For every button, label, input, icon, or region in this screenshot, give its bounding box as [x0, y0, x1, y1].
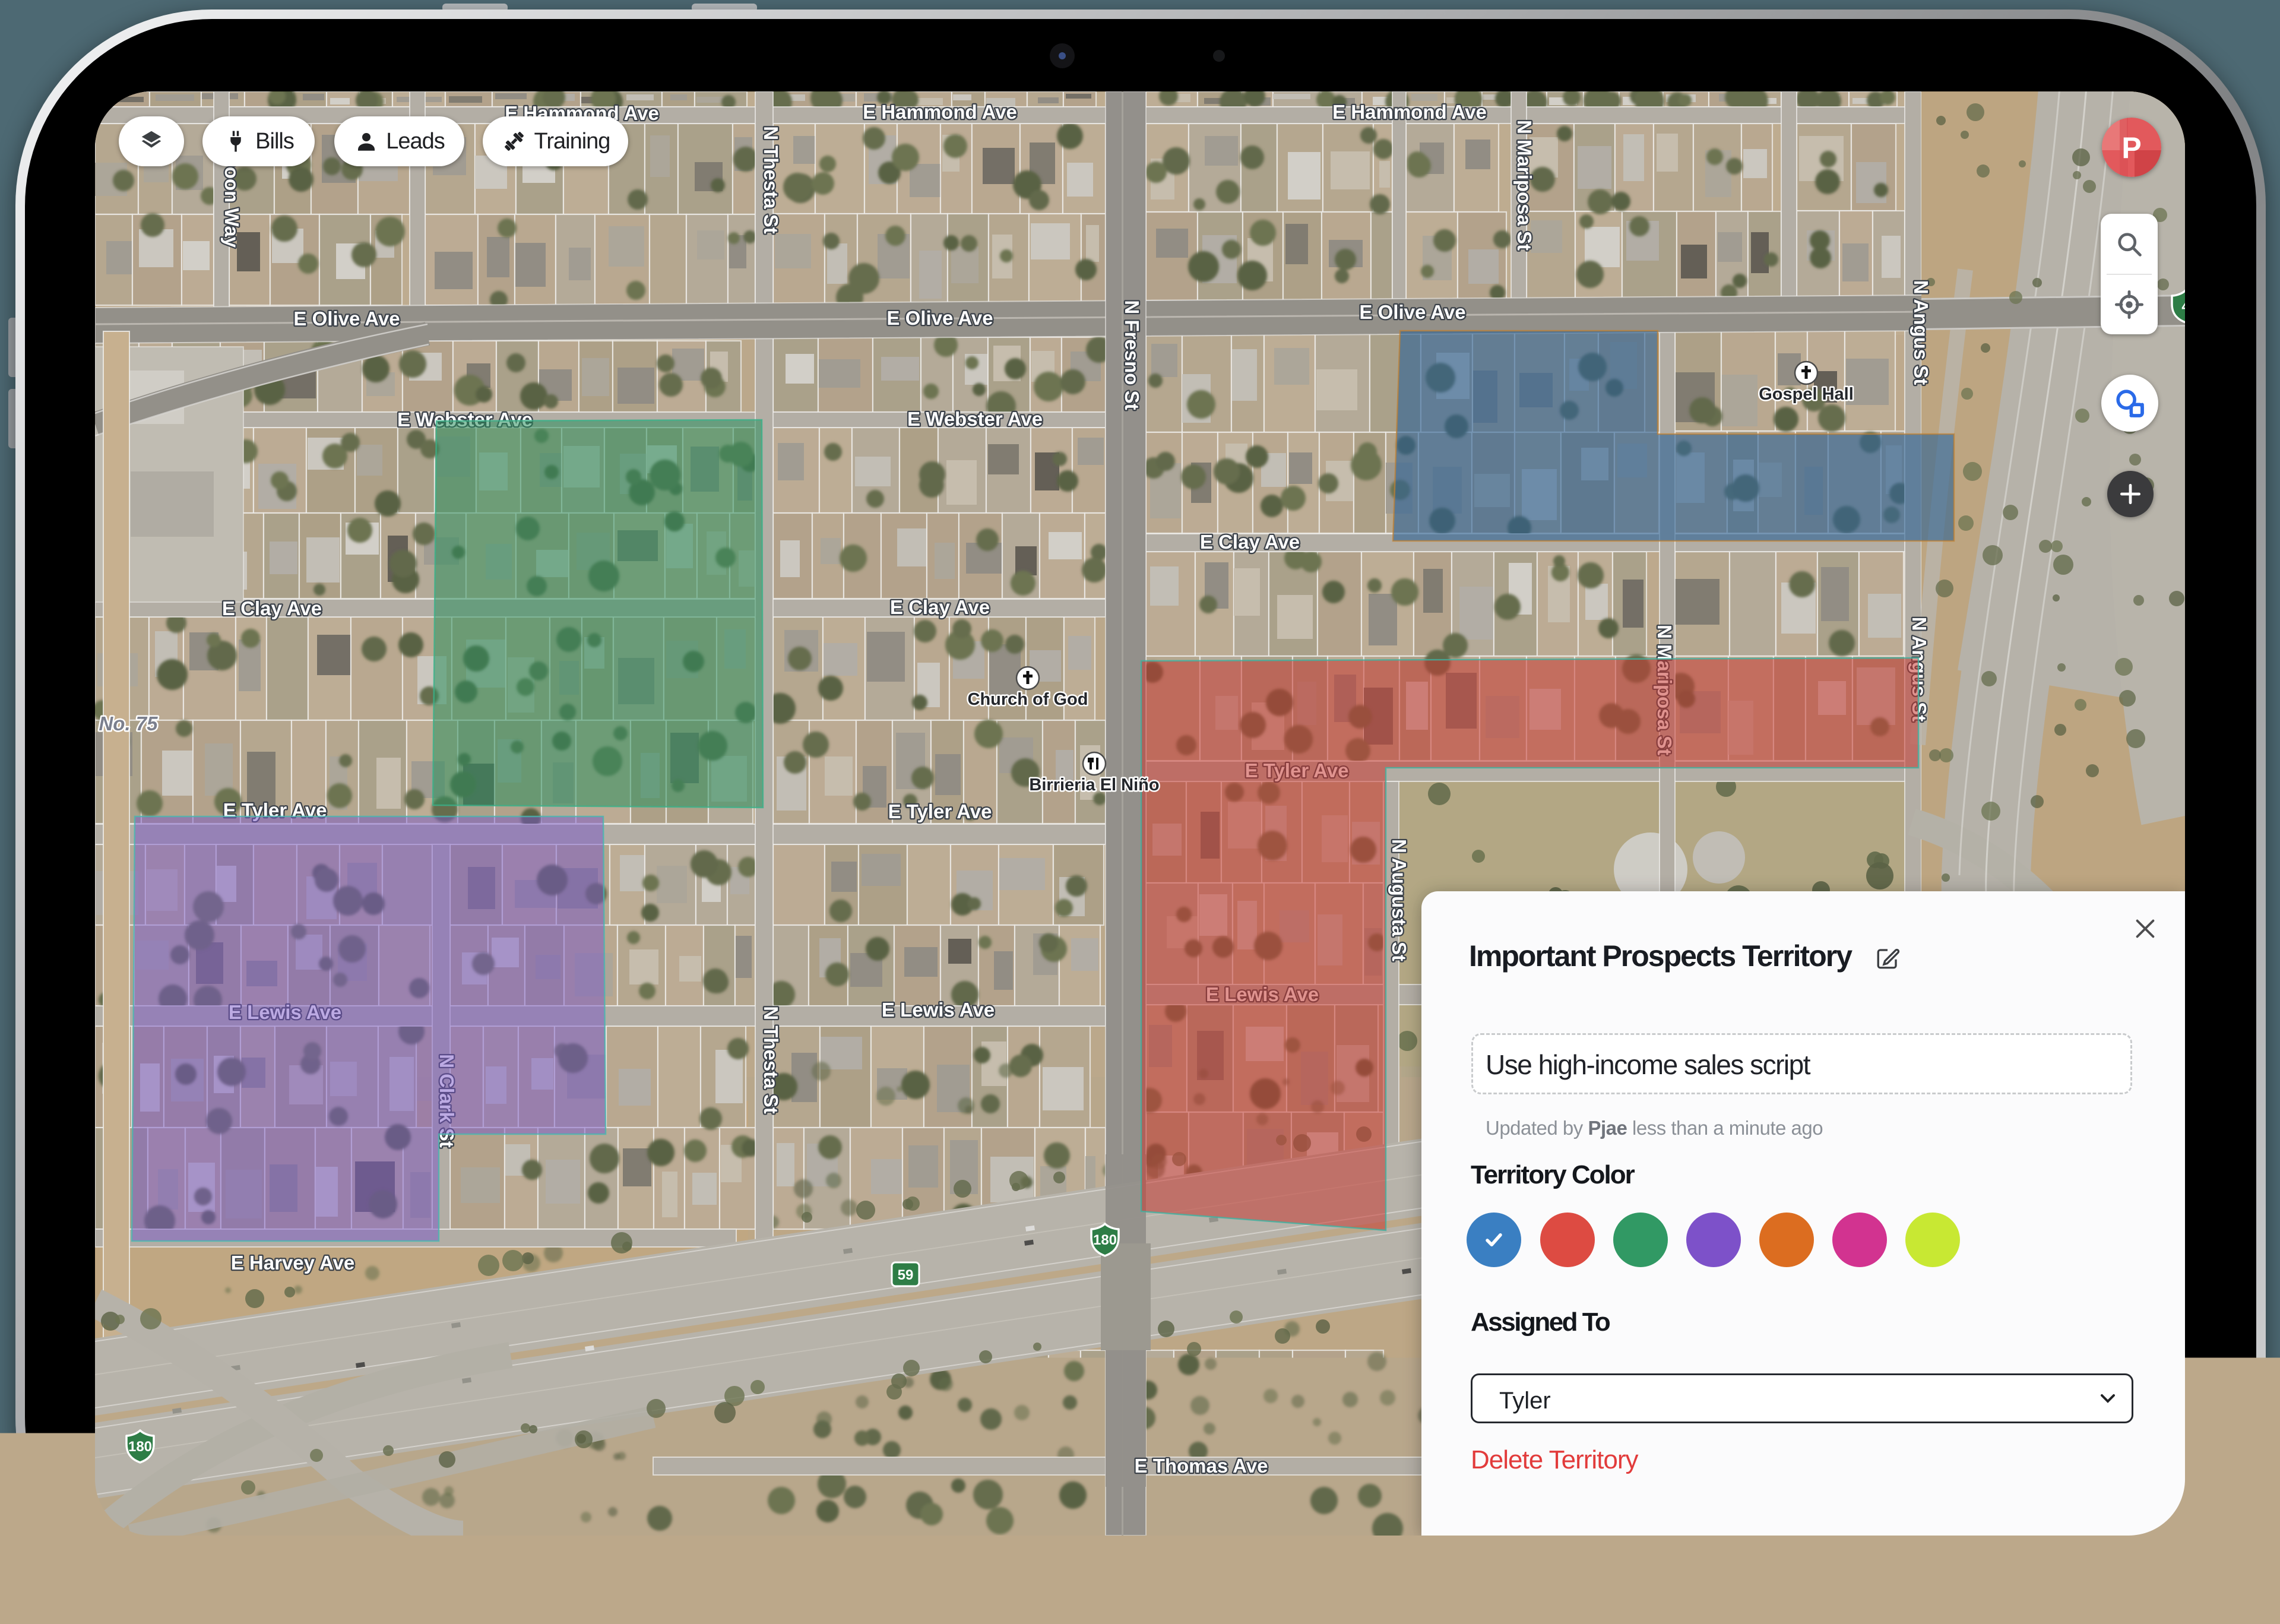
svg-text:N Angus St: N Angus St — [1910, 280, 1932, 385]
svg-text:Birrieria El Niño: Birrieria El Niño — [1029, 775, 1159, 794]
svg-text:E Olive Ave: E Olive Ave — [886, 307, 993, 329]
svg-text:N Augusta St: N Augusta St — [1388, 839, 1410, 961]
svg-text:E Clay Ave: E Clay Ave — [222, 597, 322, 619]
svg-text:Doon Way: Doon Way — [221, 153, 243, 248]
svg-text:E Tyler Ave: E Tyler Ave — [888, 800, 992, 822]
svg-text:N Mariposa St: N Mariposa St — [1513, 120, 1535, 251]
svg-text:N Thesta St: N Thesta St — [760, 1006, 782, 1114]
svg-text:N Thesta St: N Thesta St — [760, 126, 782, 234]
svg-text:P: P — [2121, 131, 2141, 164]
svg-text:N Fresno St: N Fresno St — [1121, 300, 1143, 410]
svg-text:180: 180 — [1093, 1232, 1117, 1248]
svg-text:E Harvey Ave: E Harvey Ave — [231, 1252, 355, 1274]
svg-text:Gospel Hall: Gospel Hall — [1759, 385, 1854, 404]
svg-text:59: 59 — [898, 1267, 914, 1283]
svg-text:E Thomas Ave: E Thomas Ave — [1135, 1455, 1268, 1477]
svg-text:4: 4 — [2181, 299, 2185, 315]
svg-text:E Clay Ave: E Clay Ave — [890, 596, 990, 618]
svg-text:E Clay Ave: E Clay Ave — [1200, 531, 1300, 553]
svg-text:Church of God: Church of God — [968, 690, 1088, 709]
svg-text:No. 75: No. 75 — [99, 713, 158, 735]
svg-text:E Lewis Ave: E Lewis Ave — [882, 999, 995, 1021]
svg-text:180: 180 — [128, 1439, 152, 1455]
svg-text:E Olive Ave: E Olive Ave — [293, 308, 400, 330]
svg-text:E Olive Ave: E Olive Ave — [1359, 301, 1465, 323]
svg-text:E Hammond Ave: E Hammond Ave — [863, 101, 1017, 123]
svg-text:E Webster Ave: E Webster Ave — [907, 408, 1043, 430]
svg-text:E Hammond Ave: E Hammond Ave — [1332, 101, 1487, 123]
